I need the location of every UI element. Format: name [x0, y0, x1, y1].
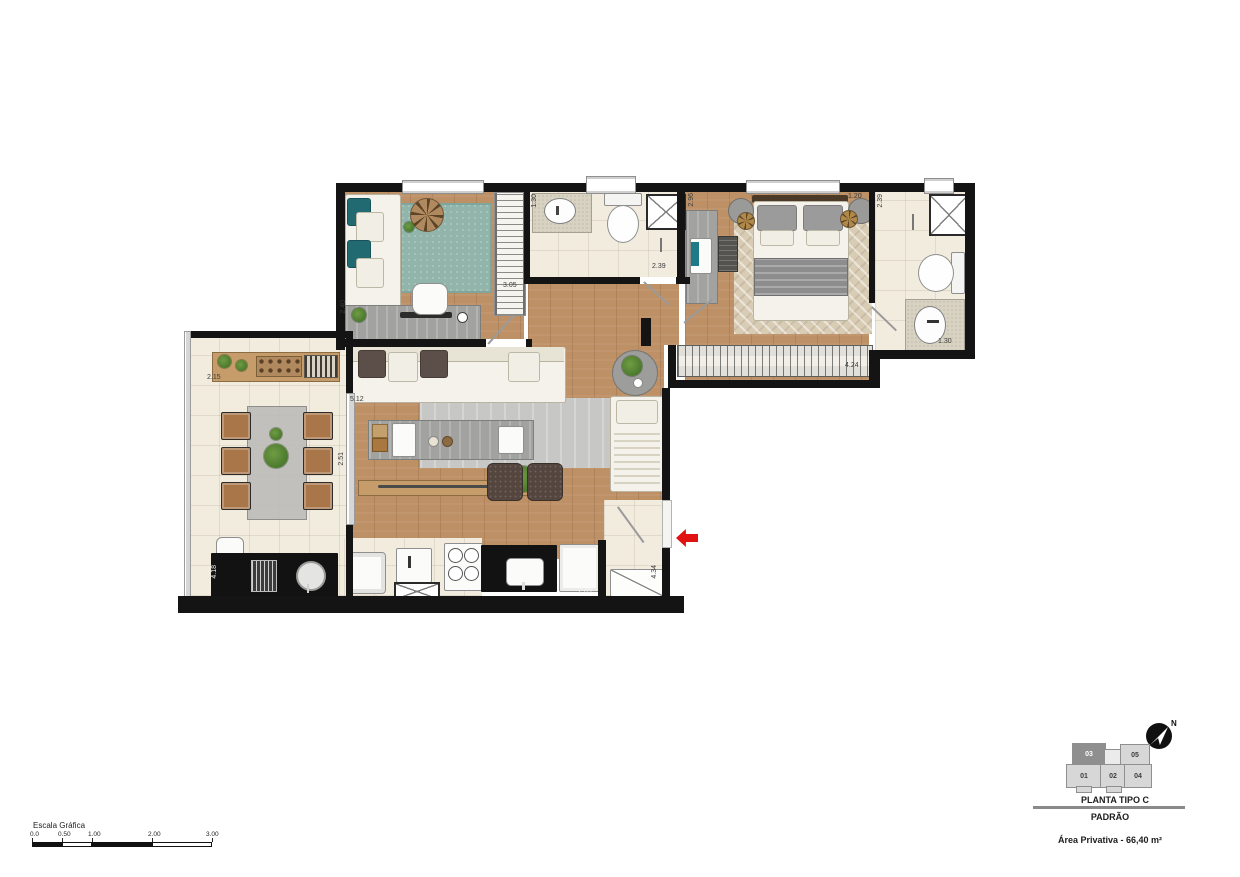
island-board — [372, 438, 388, 452]
window-ensuite — [924, 178, 954, 194]
bedroom1-pillow — [356, 212, 384, 242]
dim-bedroom1-wardrobe: 3.05 — [503, 282, 517, 290]
dining-table-plant — [270, 428, 282, 440]
wall-corridor-stub — [641, 318, 651, 346]
wall-bottom — [178, 596, 684, 613]
scale-segment — [152, 842, 212, 847]
dim-terrace-counter: 4.18 — [211, 565, 219, 579]
stove-burner — [464, 566, 479, 581]
master-closet — [677, 345, 873, 377]
island-bowl — [442, 436, 453, 447]
plan-title: PLANTA TIPO C — [1035, 795, 1195, 805]
chaise-pillow — [616, 400, 658, 424]
bedroom1-chair — [412, 283, 448, 315]
dining-chair — [221, 412, 251, 440]
scale-tickmark — [212, 838, 213, 842]
north-label: N — [1171, 719, 1177, 728]
master-cabinet — [718, 236, 738, 272]
dining-chair — [221, 482, 251, 510]
keyplan-notch — [1106, 786, 1122, 793]
bench-soundbar — [378, 485, 498, 488]
bedroom1-side-table — [410, 198, 444, 232]
wall-closet-bottom — [668, 380, 880, 388]
scale-segment — [92, 842, 152, 847]
terrace-sliding-door — [346, 393, 355, 525]
chaise-texture — [614, 430, 660, 484]
living-pillow — [508, 352, 540, 382]
keyplan-notch — [1076, 786, 1092, 793]
washing-machine — [348, 552, 386, 594]
keyplan-unit-05: 05 — [1120, 744, 1150, 766]
wall-terrace-top — [188, 331, 346, 338]
ensuite-tap — [927, 320, 939, 323]
stove-burner — [464, 548, 479, 563]
laundry-tap — [408, 556, 411, 568]
master-pillow — [760, 230, 794, 246]
kitchen-sink — [506, 558, 544, 586]
wall-bedroom1-left — [336, 183, 345, 350]
stove-burner — [448, 566, 463, 581]
dim-closet-width: 4.24 — [845, 362, 859, 370]
dim-living-side: 5.12 — [350, 396, 364, 404]
bedroom1-pillow — [356, 258, 384, 288]
scale-tick: 1.00 — [88, 831, 101, 838]
entry-door-opening — [662, 500, 672, 548]
scale-tick: 3.00 — [206, 831, 219, 838]
bathroom-sink — [544, 198, 576, 224]
living-vase — [633, 378, 643, 388]
dim-master-top: 1.20 — [848, 193, 862, 201]
ensuite-toilet — [918, 254, 954, 292]
terrace-tray — [256, 356, 302, 377]
ensuite-shower-head — [912, 214, 914, 230]
island-bowl — [428, 436, 439, 447]
dim-living-bench: 2.51 — [338, 452, 346, 466]
dining-chair — [303, 482, 333, 510]
master-blanket — [754, 258, 848, 296]
dim-bath-width: 2.39 — [652, 263, 666, 271]
dim-bath-sink: 1.30 — [531, 194, 539, 208]
laundry-sink — [396, 548, 432, 583]
keyplan-unit-02: 02 — [1100, 764, 1126, 788]
ensuite-shower-box — [929, 194, 969, 236]
entrance-arrow-icon — [676, 529, 698, 547]
bathroom-shower-head — [660, 238, 662, 252]
fridge — [559, 544, 600, 592]
island-sink — [498, 426, 524, 454]
wall-master-ensuite — [869, 191, 875, 303]
master-pillow — [757, 205, 797, 231]
bathroom-toilet — [607, 205, 639, 243]
dim-ensuite-depth: 2.39 — [877, 194, 885, 208]
wall-fridge-hall — [598, 540, 606, 596]
dining-table-plant — [264, 444, 288, 468]
keyplan-unit-01: 01 — [1066, 764, 1102, 788]
dim-master-desk-side: 2.96 — [688, 193, 696, 207]
bedroom1-plant — [404, 222, 414, 232]
master-fan-left — [737, 212, 755, 230]
wall-living-right-upper — [662, 388, 670, 500]
wall-bedroom1-bath — [524, 191, 530, 283]
terrace-plant — [236, 360, 247, 371]
bedroom1-desk-plant — [352, 308, 366, 322]
dining-chair — [221, 447, 251, 475]
scale-tick: 0.0 — [30, 831, 39, 838]
scale-tick: 0.50 — [58, 831, 71, 838]
area-label: Área Privativa - 66,40 m² — [1025, 835, 1195, 845]
dining-chair — [303, 412, 333, 440]
master-fan-right — [840, 210, 858, 228]
bedroom1-mug — [457, 312, 468, 323]
keyplan-unit-04: 04 — [1124, 764, 1152, 788]
terrace-sink — [296, 561, 326, 591]
wall-bath-master — [677, 191, 685, 284]
living-pillow — [420, 350, 448, 378]
scale-segment — [62, 842, 92, 847]
stove-burner — [448, 548, 463, 563]
bedroom1-wardrobe — [494, 192, 526, 316]
dim-kitchen-counter: 2.65 — [578, 588, 592, 596]
wall-ensuite-bottom — [872, 350, 975, 359]
wall-right-outer — [965, 183, 975, 359]
island-board — [372, 424, 388, 438]
terrace-grill — [251, 560, 277, 592]
island-tray — [392, 423, 416, 457]
master-monitor — [691, 242, 699, 266]
scale-tick: 2.00 — [148, 831, 161, 838]
master-pillow — [803, 205, 843, 231]
keyplan-unit-03: 03 — [1072, 743, 1106, 766]
bathroom-tap — [556, 206, 559, 215]
terrace-plant — [218, 355, 231, 368]
living-side-table-plant — [622, 356, 642, 376]
dim-terrace-top: 2.15 — [207, 374, 221, 382]
window-master — [746, 180, 840, 194]
legend-divider — [1033, 806, 1185, 809]
living-pillow — [388, 352, 418, 382]
window-bedroom1 — [402, 180, 484, 194]
dining-chair — [303, 447, 333, 475]
living-pillow — [358, 350, 386, 378]
scale-label: Escala Gráfica — [33, 821, 85, 830]
master-pillow — [806, 230, 840, 246]
terrace-glass-rail — [184, 331, 191, 598]
floor-plan-page: 2.40 3.05 1.30 2.39 2.96 1.20 2.39 1.30 … — [0, 0, 1240, 877]
dim-entry-side: 4.34 — [651, 565, 659, 579]
dim-ensuite-sink: 1.30 — [938, 338, 952, 346]
scale-segment — [32, 842, 62, 847]
terrace-tap — [307, 584, 309, 593]
window-bathroom — [586, 176, 636, 194]
terrace-books — [304, 355, 338, 378]
living-stool — [487, 463, 523, 501]
plan-subtitle: PADRÃO — [1035, 812, 1185, 822]
dim-bedroom1-side: 2.40 — [340, 300, 348, 314]
living-stool — [527, 463, 563, 501]
kitchen-tap — [522, 582, 525, 590]
